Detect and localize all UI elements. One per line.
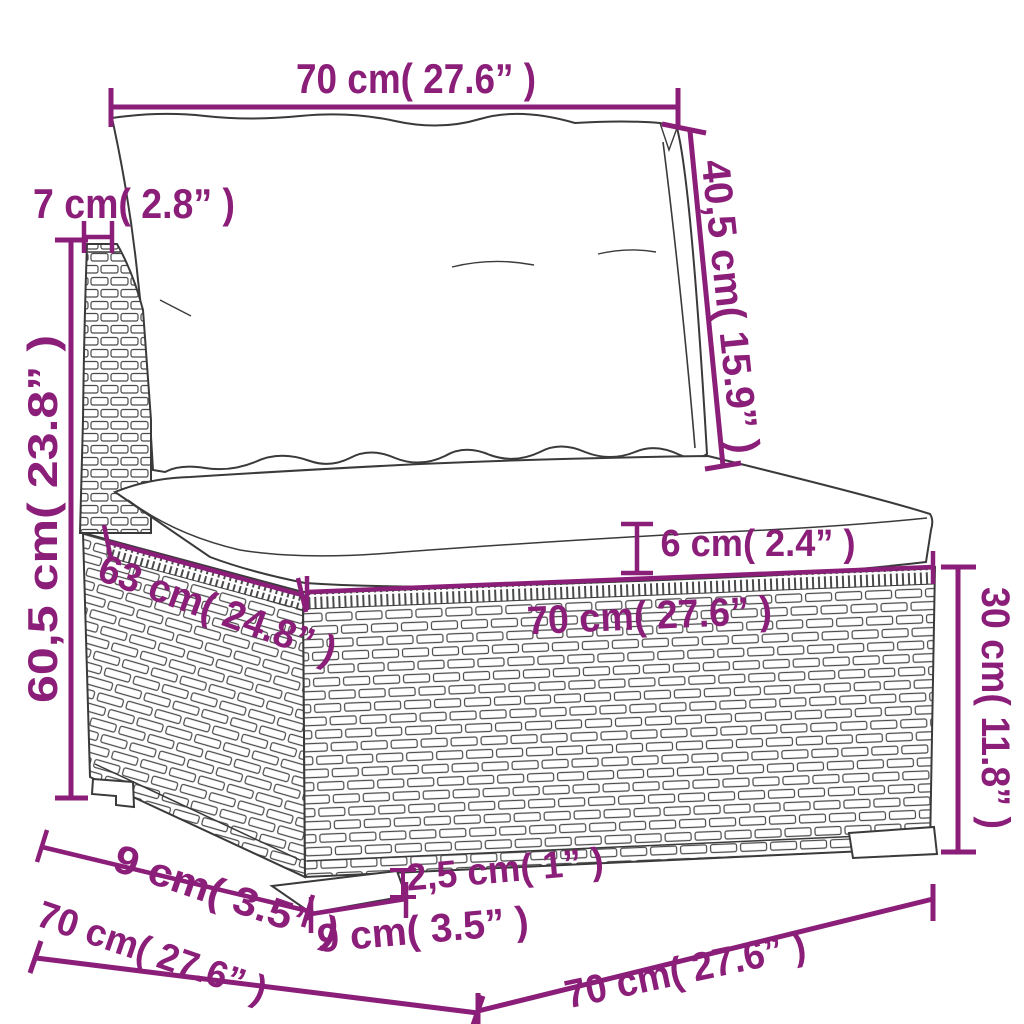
seat-cushion [115,456,932,587]
dim-base-height [941,567,976,852]
dim-label-total-height: 60,5 cm( 23.8” ) [19,335,66,703]
product-dimension-diagram: 70 cm( 27.6” ) 7 cm( 2.8” ) 40,5 cm( 15.… [0,0,1024,1024]
dim-label-bottom-width: 70 cm( 27.6” ) [561,923,810,1017]
foot-front-right [849,827,937,858]
dim-label-top-width: 70 cm( 27.6” ) [296,55,536,102]
dim-label-base-height: 30 cm( 11.8” ) [973,587,1017,829]
dim-label-back-post-width: 7 cm( 2.8” ) [33,180,235,227]
diagram-canvas: 70 cm( 27.6” ) 7 cm( 2.8” ) 40,5 cm( 15.… [0,0,1024,1024]
back-cushion [112,114,707,472]
foot-back-left [92,779,134,807]
dim-label-seat-cushion-thickness: 6 cm( 2.4” ) [661,523,856,565]
